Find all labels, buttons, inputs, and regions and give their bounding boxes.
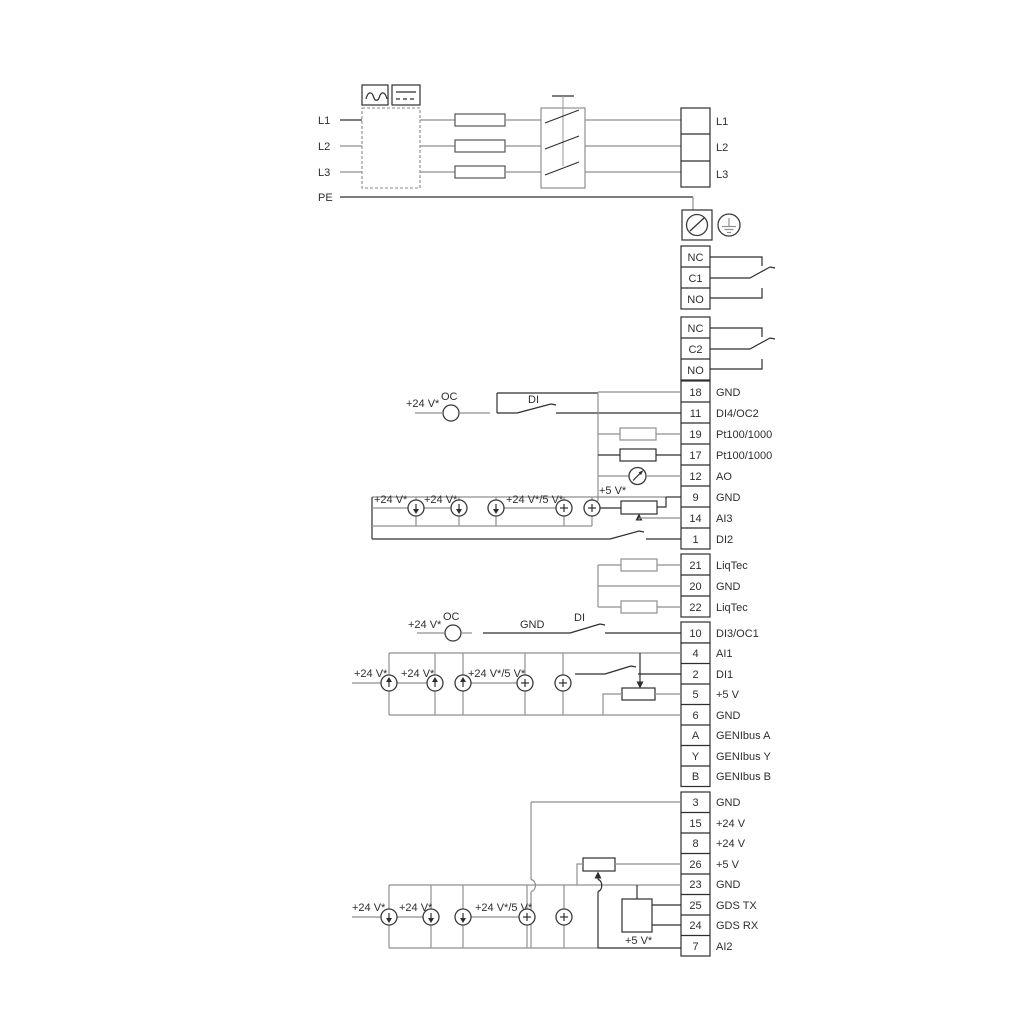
terminal-9-label: GND [716, 492, 741, 504]
terminal-21: 21 [689, 560, 701, 572]
di1-switch [575, 666, 681, 674]
terminal-2: 2 [692, 669, 698, 681]
terminal-8-label: +24 V [716, 838, 746, 850]
relay1-nc: NC [688, 252, 704, 264]
terminal-6: 6 [692, 710, 698, 722]
current-source-icon [455, 675, 471, 691]
terminal-7: 7 [692, 941, 698, 953]
terminal-19-label: Pt100/1000 [716, 429, 772, 441]
plus24v-5v-label: +24 V*/5 V* [468, 668, 526, 680]
plus5v-label: +5 V* [599, 485, 627, 497]
relay2-contact-symbol [710, 328, 775, 369]
terminal-b-label: GENIbus B [716, 771, 771, 783]
terminal-20: 20 [689, 581, 701, 593]
pt100-circuit-19 [598, 428, 681, 440]
terminal-26-label: +5 V [716, 859, 740, 871]
ac-symbol-icon [362, 85, 388, 105]
voltage-source-icon [555, 675, 571, 691]
diagram-canvas: L1 L2 L3 PE [0, 0, 1024, 1024]
relay1-c1: C1 [688, 273, 702, 285]
gds-sensor-box: +5 V* [622, 885, 681, 947]
power-out-label-l1: L1 [716, 116, 728, 128]
terminal-2-label: DI1 [716, 669, 733, 681]
terminal-1: 1 [692, 534, 698, 546]
terminal-12: 12 [689, 471, 701, 483]
plus24v-label: +24 V* [374, 494, 408, 506]
liqtec-sensor-icon [621, 559, 657, 571]
io-top-terminal-block: 18 11 19 17 12 9 14 1 GND DI4/OC2 Pt100/… [681, 381, 772, 549]
current-source-icon [427, 675, 443, 691]
di-label: DI [528, 394, 539, 406]
power-out-label-l3: L3 [716, 169, 728, 181]
fuse-l1 [455, 114, 505, 126]
current-sink-icon [408, 500, 424, 516]
current-sink-icon [455, 909, 471, 925]
terminal-6-label: GND [716, 710, 741, 722]
pt100-sensor-icon [620, 449, 656, 461]
voltage-source-icon [556, 500, 572, 516]
terminal-25: 25 [689, 900, 701, 912]
io-mid-terminal-block: 4 2 5 6 A Y B AI1 DI1 +5 V GND GENIbus A… [681, 643, 771, 787]
terminal-19: 19 [689, 429, 701, 441]
relay1-contact-symbol [710, 257, 775, 298]
terminal-4-label: AI1 [716, 648, 733, 660]
power-out-label-l2: L2 [716, 142, 728, 154]
open-collector-icon [443, 405, 459, 421]
fuse-section [420, 114, 541, 178]
oc-label: OC [441, 391, 458, 403]
terminal-18-label: GND [716, 387, 741, 399]
terminal-5: 5 [692, 689, 698, 701]
terminal-a: A [692, 730, 700, 742]
mains-label-l2: L2 [318, 141, 330, 153]
ai1-source-group: +24 V* +24 V* +24 V*/5 V* [352, 653, 681, 715]
terminal-b: B [692, 771, 699, 783]
relay1-no: NO [687, 294, 704, 306]
terminal-10: 10 [689, 628, 701, 640]
relay2-no: NO [687, 365, 704, 377]
terminal-18: 18 [689, 387, 701, 399]
relay2-c2: C2 [688, 344, 702, 356]
open-collector-icon [445, 625, 461, 641]
terminal-9: 9 [692, 492, 698, 504]
terminal-a-label: GENIbus A [716, 730, 771, 742]
mains-input-wires [340, 120, 362, 172]
pt100-sensor-icon [620, 428, 656, 440]
terminal-24: 24 [689, 920, 701, 932]
plus24v-label: +24 V* [406, 398, 440, 410]
io-bottom-terminal-block: 3 15 8 26 23 25 24 7 GND +24 V +24 V +5 … [681, 792, 759, 956]
gnd-label: GND [520, 619, 545, 631]
terminal-15: 15 [689, 818, 701, 830]
terminal-23: 23 [689, 879, 701, 891]
terminal-4: 4 [692, 648, 698, 660]
mains-label-l3: L3 [318, 167, 330, 179]
earth-ground-icon [718, 214, 740, 236]
terminal-1-label: DI2 [716, 534, 733, 546]
terminal-24-label: GDS RX [716, 920, 759, 932]
terminal-17: 17 [689, 450, 701, 462]
pe-terminal-icon [682, 210, 712, 240]
wiring-diagram: L1 L2 L3 PE [0, 0, 1024, 1024]
terminal-10-label: DI3/OC1 [716, 628, 759, 640]
terminal-y: Y [692, 751, 700, 763]
relay2-nc: NC [688, 323, 704, 335]
main-switch [541, 96, 585, 188]
current-sink-icon [423, 909, 439, 925]
ai2-source-group: +24 V* +24 V* +24 V*/5 V* [352, 858, 681, 948]
liqtec-terminal-block: 21 20 22 LiqTec GND LiqTec [598, 554, 748, 617]
terminal-22: 22 [689, 602, 701, 614]
current-sink-icon [381, 909, 397, 925]
liqtec-sensor-icon [621, 601, 657, 613]
setpoint-potentiometer [603, 653, 681, 715]
terminal-25-label: GDS TX [716, 900, 757, 912]
pt100-circuit-17 [598, 449, 681, 461]
liqtec-sensor-circuit [598, 559, 681, 613]
mains-label-l1: L1 [318, 115, 330, 127]
terminal-23-label: GND [716, 879, 741, 891]
voltage-source-icon [584, 500, 600, 516]
voltage-source-icon [519, 909, 535, 925]
terminal-15-label: +24 V [716, 818, 746, 830]
plus24v-5v-label: +24 V*/5 V* [506, 494, 564, 506]
potentiometer-icon [621, 497, 681, 521]
di2-switch [372, 531, 681, 539]
current-sink-icon [488, 500, 504, 516]
ao-circuit [598, 468, 681, 485]
voltage-source-icon [517, 675, 533, 691]
plus24v-label: +24 V* [352, 902, 386, 914]
terminal-5-label: +5 V [716, 689, 740, 701]
terminal-14-label: AI3 [716, 513, 733, 525]
terminal-20-label: GND [716, 581, 741, 593]
plus5v-label: +5 V* [625, 935, 653, 947]
power-output-wires [585, 120, 681, 172]
fuse-l3 [455, 166, 505, 178]
terminal-7-label: AI2 [716, 941, 733, 953]
terminal-17-label: Pt100/1000 [716, 450, 772, 462]
relay1-block: NC C1 NO [681, 246, 775, 309]
dc-symbol-icon [392, 85, 420, 105]
power-terminal-block: L1 L2 L3 [681, 108, 728, 187]
fuse-l2 [455, 140, 505, 152]
current-source-icon [381, 675, 397, 691]
terminal-21-label: LiqTec [716, 560, 748, 572]
terminal-y-label: GENIbus Y [716, 751, 771, 763]
terminal-26: 26 [689, 859, 701, 871]
gnd-3-drop-wire [531, 802, 681, 948]
di-label: DI [574, 612, 585, 624]
di3-circuit: +24 V* OC GND DI [408, 611, 681, 641]
rfi-filter-box [362, 108, 420, 188]
relay2-block: NC C2 NO [681, 317, 775, 380]
pe-ground-section [340, 197, 740, 240]
current-sink-icon [451, 500, 467, 516]
terminal-3-label: GND [716, 797, 741, 809]
terminal-22-label: LiqTec [716, 602, 748, 614]
terminal-11: 11 [690, 408, 701, 420]
mains-label-pe: PE [318, 192, 333, 204]
ai3-source-group: +24 V* +24 V* +24 V*/5 V* +5 V* [372, 485, 681, 539]
mains-input-labels: L1 L2 L3 PE [318, 115, 333, 204]
oc-label: OC [443, 611, 460, 623]
terminal-3: 3 [692, 797, 698, 809]
terminal-11-label: DI4/OC2 [716, 408, 759, 420]
plus24v-label: +24 V* [408, 619, 442, 631]
terminal-8: 8 [692, 838, 698, 850]
terminal-12-label: AO [716, 471, 732, 483]
terminal-14: 14 [689, 513, 701, 525]
voltage-source-icon [556, 909, 572, 925]
